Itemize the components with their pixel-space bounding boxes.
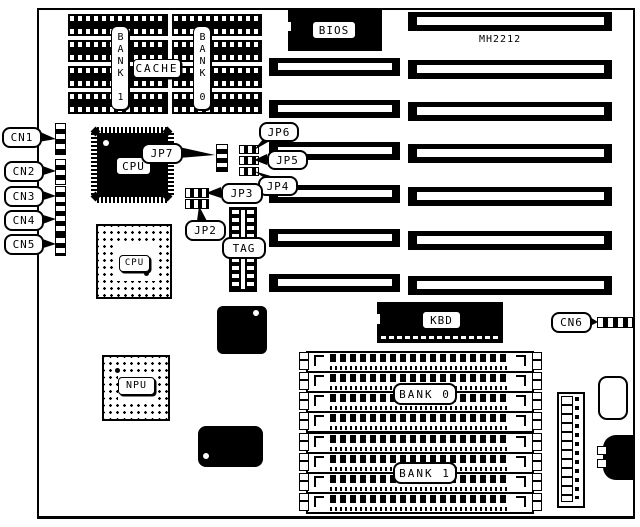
cache-bank0-label: BANK 0	[193, 26, 211, 110]
cpu-socket-label: CPU	[119, 255, 150, 272]
connector-label-cn6: CN6	[551, 312, 592, 333]
npu-label: NPU	[118, 377, 155, 395]
bios-label: BIOS	[312, 21, 356, 39]
jumper-label-jp5: JP5	[267, 150, 308, 170]
jumper-label-jp2: JP2	[185, 220, 226, 241]
cache-label: CACHE	[133, 59, 181, 78]
connector-label-cn2: CN2	[4, 161, 44, 182]
jumper-label-jp6: JP6	[259, 122, 299, 142]
kbd-label: KBD	[422, 311, 461, 329]
connector-label-cn4: CN4	[4, 210, 44, 231]
cache-bank1-label: BANK 1	[111, 26, 129, 110]
tag-label: TAG	[222, 237, 266, 259]
simm-bank1-label: BANK 1	[393, 462, 457, 484]
jumper-label-jp3: JP3	[221, 183, 263, 204]
callout-arms	[0, 0, 640, 527]
jumper-label-jp4: JP4	[258, 176, 298, 196]
connector-label-cn1: CN1	[2, 127, 42, 148]
jumper-label-jp7: JP7	[141, 143, 183, 164]
motherboard-diagram: BANK 1 BANK 0 CACHE BIOS MH2212 CN1 CN2 …	[0, 0, 640, 527]
connector-label-cn3: CN3	[4, 186, 44, 207]
connector-label-cn5: CN5	[4, 234, 44, 255]
simm-bank0-label: BANK 0	[393, 383, 457, 405]
